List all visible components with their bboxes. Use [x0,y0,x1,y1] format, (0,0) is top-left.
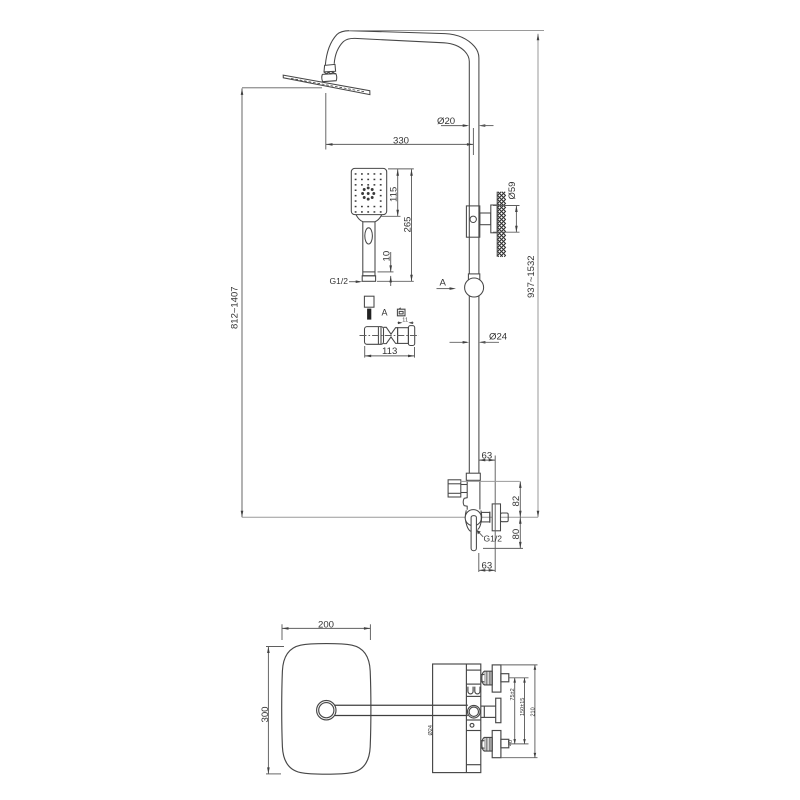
svg-text:115: 115 [389,187,400,202]
svg-text:113: 113 [382,346,397,357]
svg-text:150±15: 150±15 [520,698,526,716]
svg-text:210: 210 [531,707,537,716]
svg-text:40: 40 [508,740,514,746]
svg-text:63: 63 [482,561,493,572]
svg-text:80: 80 [511,529,522,540]
svg-text:82: 82 [511,496,522,507]
svg-text:A: A [440,278,447,289]
svg-text:A: A [382,307,388,317]
svg-text:63: 63 [482,451,493,462]
svg-text:75±2: 75±2 [510,688,516,700]
svg-text:265: 265 [403,216,414,232]
svg-text:11: 11 [402,317,408,323]
svg-text:Ø24: Ø24 [428,725,434,735]
svg-text:G1/2: G1/2 [484,534,503,544]
svg-text:Ø59: Ø59 [507,182,518,200]
svg-text:Ø24: Ø24 [489,332,508,343]
svg-text:10: 10 [382,251,393,262]
svg-text:330: 330 [393,136,409,147]
svg-text:300: 300 [260,706,271,722]
svg-text:200: 200 [318,620,334,631]
svg-text:812~1407: 812~1407 [230,286,241,329]
svg-text:937~1532: 937~1532 [526,255,537,298]
svg-text:G1/2: G1/2 [330,276,349,286]
